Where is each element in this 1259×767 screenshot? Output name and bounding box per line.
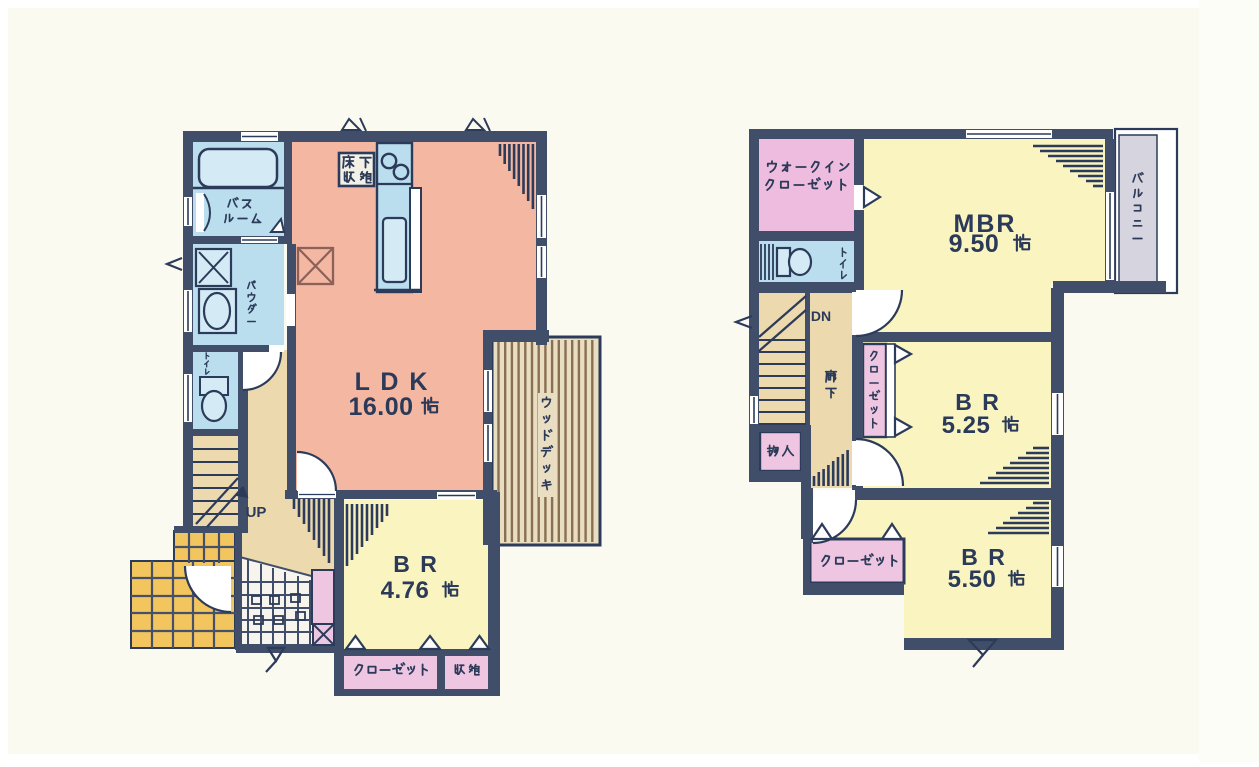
svg-text:9.50: 9.50 xyxy=(949,230,1000,258)
svg-text:B R: B R xyxy=(393,551,439,577)
svg-text:DN: DN xyxy=(811,308,831,324)
svg-text:4.76: 4.76 xyxy=(381,577,430,604)
svg-text:5.50: 5.50 xyxy=(948,566,997,593)
svg-text:UP: UP xyxy=(246,504,267,521)
svg-text:5.25: 5.25 xyxy=(942,412,991,439)
svg-text:16.00: 16.00 xyxy=(348,393,413,421)
svg-text:L D K: L D K xyxy=(355,368,430,396)
